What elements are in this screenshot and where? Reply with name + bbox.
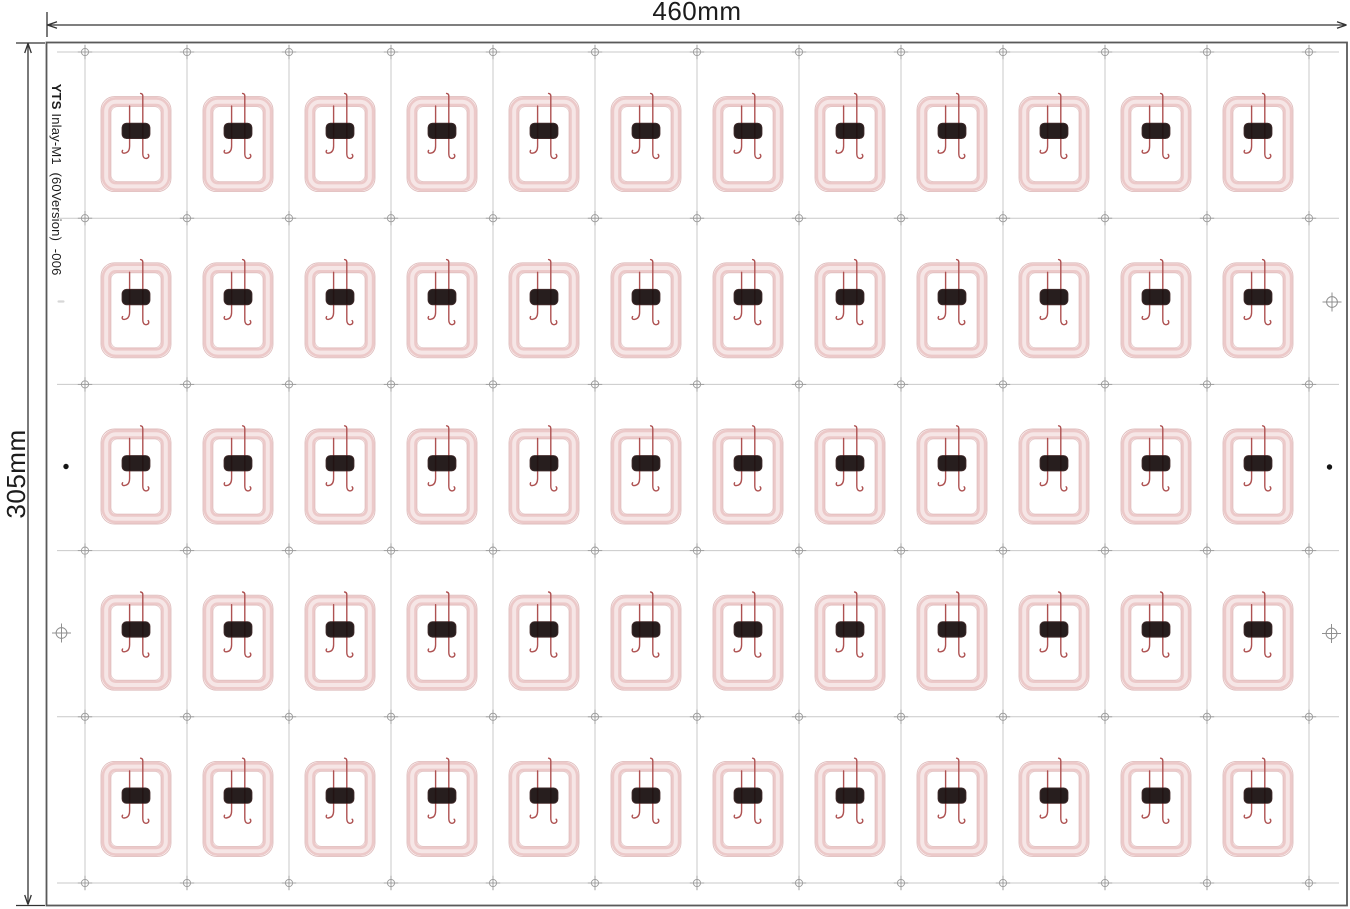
height-dimension: 305mm: [1, 43, 45, 906]
rfid-inlay: [101, 260, 171, 358]
registration-mark: [180, 45, 194, 59]
rfid-inlay: [1019, 260, 1089, 358]
rfid-inlay: [407, 93, 477, 191]
registration-mark: [384, 543, 398, 557]
rfid-inlay: [1223, 758, 1293, 856]
registration-mark: [78, 211, 92, 225]
registration-mark: [1098, 543, 1112, 557]
registration-mark: [996, 543, 1010, 557]
registration-mark: [282, 876, 296, 890]
registration-mark: [1302, 45, 1316, 59]
registration-mark: [1302, 710, 1316, 724]
rfid-inlay: [509, 93, 579, 191]
sheet-code-rest: Inlay-M1 (60Version) -006: [49, 110, 64, 276]
registration-mark: [894, 543, 908, 557]
registration-mark: [180, 710, 194, 724]
rfid-inlay: [203, 592, 273, 690]
rfid-inlay: [1121, 592, 1191, 690]
registration-mark: [384, 710, 398, 724]
registration-mark: [180, 543, 194, 557]
registration-mark: [78, 876, 92, 890]
rfid-inlay: [101, 592, 171, 690]
rfid-inlay: [101, 758, 171, 856]
rfid-inlay: [407, 758, 477, 856]
registration-mark: [894, 211, 908, 225]
registration-mark: [78, 710, 92, 724]
punch-crosshair-mark: [1323, 293, 1342, 312]
rfid-inlay: [1121, 426, 1191, 524]
registration-mark: [1200, 45, 1214, 59]
rfid-inlay: [713, 93, 783, 191]
registration-mark: [486, 377, 500, 391]
registration-mark: [384, 45, 398, 59]
registration-mark: [1200, 876, 1214, 890]
registration-mark: [282, 543, 296, 557]
registration-mark: [894, 377, 908, 391]
width-dimension-label: 460mm: [652, 0, 741, 26]
registration-mark: [996, 211, 1010, 225]
registration-mark: [486, 45, 500, 59]
registration-mark: [1302, 211, 1316, 225]
rfid-inlay: [101, 93, 171, 191]
punch-dot-mark: [1327, 464, 1332, 469]
registration-mark: [282, 45, 296, 59]
registration-mark: [588, 377, 602, 391]
rfid-inlay: [713, 260, 783, 358]
rfid-inlay: [917, 426, 987, 524]
registration-mark: [894, 876, 908, 890]
rfid-inlay: [509, 260, 579, 358]
rfid-inlay: [203, 426, 273, 524]
rfid-inlay: [305, 592, 375, 690]
registration-mark: [180, 377, 194, 391]
rfid-inlay: [203, 93, 273, 191]
registration-mark: [1200, 211, 1214, 225]
rfid-inlay: [917, 260, 987, 358]
registration-mark: [1098, 710, 1112, 724]
registration-mark: [1302, 377, 1316, 391]
rfid-inlay: [509, 758, 579, 856]
registration-mark: [384, 377, 398, 391]
rfid-inlay: [917, 592, 987, 690]
registration-mark: [1302, 876, 1316, 890]
registration-mark: [996, 710, 1010, 724]
rfid-inlay: [1019, 592, 1089, 690]
rfid-inlay: [917, 758, 987, 856]
registration-mark: [486, 543, 500, 557]
rfid-inlay: [1223, 592, 1293, 690]
registration-mark: [1200, 710, 1214, 724]
rfid-inlay: [1223, 426, 1293, 524]
registration-mark: [486, 876, 500, 890]
rfid-inlay: [611, 426, 681, 524]
rfid-inlay: [407, 426, 477, 524]
registration-mark: [996, 45, 1010, 59]
registration-mark: [486, 710, 500, 724]
rfid-inlay: [1121, 93, 1191, 191]
registration-mark: [894, 710, 908, 724]
registration-mark: [792, 45, 806, 59]
rfid-inlay: [203, 260, 273, 358]
rfid-inlay: [509, 592, 579, 690]
inlay-sheet-drawing: 460mm 305mm YTS Inlay-M1 (60Version) -00…: [0, 0, 1350, 909]
rfid-inlay: [713, 426, 783, 524]
rfid-inlay: [1019, 93, 1089, 191]
registration-mark: [588, 876, 602, 890]
registration-mark: [792, 543, 806, 557]
registration-mark: [588, 45, 602, 59]
rfid-inlay: [611, 260, 681, 358]
rfid-inlay: [815, 758, 885, 856]
rfid-inlay: [713, 592, 783, 690]
faint-mark: [58, 300, 65, 302]
rfid-inlay: [407, 592, 477, 690]
rfid-inlay: [203, 758, 273, 856]
registration-mark: [486, 211, 500, 225]
registration-mark: [180, 211, 194, 225]
rfid-inlay: [1121, 260, 1191, 358]
sheet-code-label: YTS Inlay-M1 (60Version) -006: [49, 57, 64, 295]
registration-mark: [690, 377, 704, 391]
rfid-inlay: [1019, 758, 1089, 856]
rfid-inlay: [305, 93, 375, 191]
registration-mark: [588, 710, 602, 724]
registration-mark: [1098, 876, 1112, 890]
rfid-inlay: [1019, 426, 1089, 524]
registration-mark: [282, 211, 296, 225]
sheet-code-bold: YTS: [49, 84, 64, 110]
rfid-inlay: [509, 426, 579, 524]
rfid-inlay: [305, 426, 375, 524]
registration-mark: [690, 45, 704, 59]
registration-mark: [588, 211, 602, 225]
registration-mark: [1098, 377, 1112, 391]
registration-mark: [690, 211, 704, 225]
registration-mark: [78, 45, 92, 59]
registration-mark: [792, 211, 806, 225]
registration-mark: [78, 543, 92, 557]
rfid-inlay: [815, 592, 885, 690]
registration-mark: [1098, 45, 1112, 59]
rfid-inlay: [611, 758, 681, 856]
rfid-inlay: [815, 260, 885, 358]
registration-mark: [384, 876, 398, 890]
registration-mark: [282, 377, 296, 391]
registration-mark: [690, 710, 704, 724]
rfid-inlay: [1121, 758, 1191, 856]
registration-mark: [282, 710, 296, 724]
height-dimension-label: 305mm: [1, 429, 31, 518]
rfid-inlay: [713, 758, 783, 856]
registration-mark: [1098, 211, 1112, 225]
rfid-inlay: [611, 93, 681, 191]
registration-mark: [1200, 543, 1214, 557]
rfid-inlay: [917, 93, 987, 191]
registration-mark: [588, 543, 602, 557]
registration-mark: [690, 543, 704, 557]
registration-mark: [180, 876, 194, 890]
registration-mark: [894, 45, 908, 59]
registration-mark: [690, 876, 704, 890]
registration-mark: [78, 377, 92, 391]
registration-mark: [384, 211, 398, 225]
width-dimension: 460mm: [47, 0, 1347, 37]
registration-mark: [792, 377, 806, 391]
rfid-inlay: [815, 426, 885, 524]
rfid-inlay: [815, 93, 885, 191]
rfid-inlay: [611, 592, 681, 690]
registration-mark: [1200, 377, 1214, 391]
punch-crosshair-mark: [1322, 624, 1341, 643]
registration-mark: [996, 876, 1010, 890]
registration-mark: [1302, 543, 1316, 557]
rfid-inlay: [1223, 93, 1293, 191]
rfid-inlay: [101, 426, 171, 524]
rfid-inlay: [407, 260, 477, 358]
registration-mark: [792, 710, 806, 724]
rfid-inlay: [305, 260, 375, 358]
rfid-inlay: [1223, 260, 1293, 358]
drawing-canvas: 460mm 305mm YTS Inlay-M1 (60Version) -00…: [0, 0, 1350, 909]
rfid-inlay: [305, 758, 375, 856]
punch-crosshair-mark: [52, 624, 71, 643]
punch-dot-mark: [63, 464, 68, 469]
registration-mark: [792, 876, 806, 890]
registration-mark: [996, 377, 1010, 391]
